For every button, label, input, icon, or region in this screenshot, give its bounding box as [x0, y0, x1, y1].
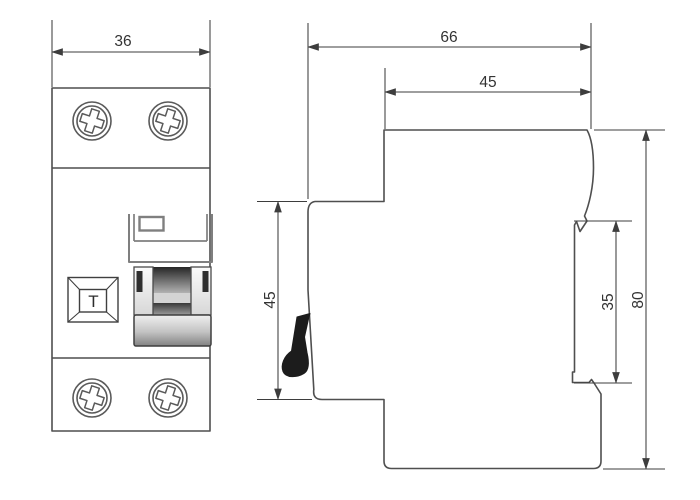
- toggle-lever: [282, 314, 310, 377]
- side-recess-height-dimension: 35: [574, 221, 632, 383]
- upper-depth-dimension-label: 45: [479, 74, 496, 91]
- width-dimension-label: 36: [114, 33, 131, 50]
- recess-height-dimension-label: 35: [600, 293, 617, 310]
- side-body-outline: [308, 130, 601, 469]
- toggle-left-notch: [137, 271, 143, 292]
- toggle-switch: [134, 267, 211, 346]
- toggle-center-lower: [153, 303, 191, 315]
- depth-dimension-label: 66: [440, 29, 457, 46]
- technical-drawing-page: 36: [0, 0, 700, 500]
- side-upper-depth-dimension: 45: [385, 68, 591, 129]
- front-height-dimension-label: 45: [262, 291, 279, 308]
- test-button: T: [68, 278, 118, 323]
- front-view: 36: [52, 20, 212, 431]
- circuit-breaker-dimension-drawing: 36: [0, 0, 700, 500]
- terminal-screw-icon-top-left: [73, 102, 111, 140]
- toggle-center-upper: [153, 267, 191, 293]
- status-indicator-window: [140, 217, 164, 231]
- terminal-screw-icon-bottom-right: [149, 379, 187, 417]
- front-body-outline: [52, 88, 210, 431]
- test-button-label: T: [88, 292, 98, 311]
- toggle-right-notch: [203, 271, 209, 292]
- height-dimension-label: 80: [630, 291, 647, 309]
- toggle-barrel: [134, 315, 211, 346]
- toggle-center-band: [153, 293, 191, 303]
- terminal-screw-icon-bottom-left: [73, 379, 111, 417]
- side-view: 66 45 45 35 8: [257, 23, 665, 469]
- terminal-screw-icon-top-right: [149, 102, 187, 140]
- front-width-dimension: 36: [52, 20, 210, 87]
